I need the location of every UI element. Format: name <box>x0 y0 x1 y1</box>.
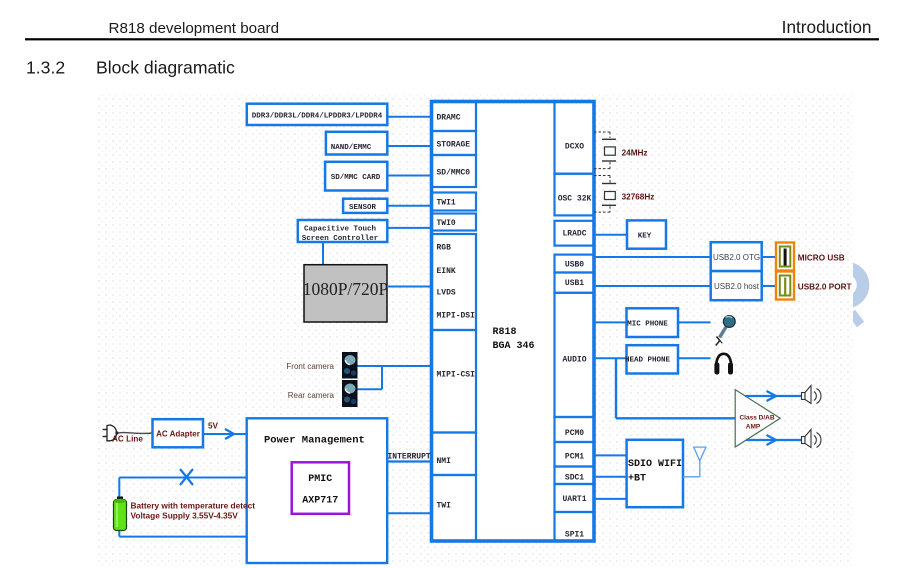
svg-text:USB0: USB0 <box>565 261 584 270</box>
svg-text:Voltage Supply 3.55V-4.35V: Voltage Supply 3.55V-4.35V <box>131 511 239 521</box>
svg-text:OSC 32K: OSC 32K <box>558 195 592 204</box>
svg-text:SDIO WIFI: SDIO WIFI <box>628 459 682 470</box>
svg-text:R818: R818 <box>493 327 517 338</box>
svg-text:KEY: KEY <box>638 233 652 241</box>
svg-text:SD/MMC CARD: SD/MMC CARD <box>331 174 381 182</box>
svg-text:USB2.0 PORT: USB2.0 PORT <box>798 283 852 292</box>
svg-text:PCM0: PCM0 <box>565 429 584 438</box>
svg-text:TWI: TWI <box>437 502 452 511</box>
svg-text:RGB: RGB <box>437 244 452 253</box>
svg-text:STORAGE: STORAGE <box>437 141 471 150</box>
svg-text:24MHz: 24MHz <box>622 149 648 158</box>
svg-text:MIPI-DSI: MIPI-DSI <box>437 312 476 321</box>
svg-text:MIC PHONE: MIC PHONE <box>627 320 668 328</box>
svg-text:R818 development board: R818 development board <box>109 20 280 37</box>
svg-text:5V: 5V <box>208 422 219 431</box>
svg-text:USB1: USB1 <box>565 279 584 288</box>
svg-text:TWI0: TWI0 <box>437 219 456 228</box>
svg-text:EINK: EINK <box>437 267 456 276</box>
svg-text:SDC1: SDC1 <box>565 474 584 483</box>
svg-text:NAND/EMMC: NAND/EMMC <box>331 144 372 152</box>
svg-text:32768Hz: 32768Hz <box>622 193 655 202</box>
svg-text:AUDIO: AUDIO <box>562 356 586 365</box>
svg-text:USB2.0 OTG: USB2.0 OTG <box>713 253 760 262</box>
svg-text:+BT: +BT <box>628 474 646 485</box>
svg-text:Class D/AB: Class D/AB <box>739 415 774 422</box>
svg-text:SD/MMC0: SD/MMC0 <box>437 169 471 178</box>
svg-text:SPI1: SPI1 <box>565 531 584 540</box>
svg-text:Block diagramatic: Block diagramatic <box>96 58 235 78</box>
svg-text:PMIC: PMIC <box>308 474 332 485</box>
svg-text:Battery with temperature detec: Battery with temperature detect <box>131 501 256 511</box>
svg-text:BGA 346: BGA 346 <box>493 341 535 352</box>
svg-text:LRADC: LRADC <box>562 230 586 239</box>
svg-text:HEAD PHONE: HEAD PHONE <box>625 356 671 364</box>
svg-text:MICRO USB: MICRO USB <box>798 254 845 263</box>
svg-text:Capacitive Touch: Capacitive Touch <box>304 225 377 233</box>
svg-text:NMI: NMI <box>437 457 452 466</box>
svg-text:SENSOR: SENSOR <box>349 204 377 212</box>
svg-text:UART1: UART1 <box>562 495 586 504</box>
svg-text:Rear camera: Rear camera <box>288 391 335 400</box>
svg-text:AMP: AMP <box>746 424 761 431</box>
svg-text:Front camera: Front camera <box>286 362 334 371</box>
svg-text:Introduction: Introduction <box>782 17 872 37</box>
svg-text:Power Management: Power Management <box>264 435 365 447</box>
svg-text:USB2.0 host: USB2.0 host <box>714 282 760 291</box>
svg-text:MIPI-CSI: MIPI-CSI <box>437 371 476 380</box>
svg-text:Screen Controller: Screen Controller <box>302 235 379 243</box>
svg-text:DCXO: DCXO <box>565 143 584 152</box>
svg-text:AXP717: AXP717 <box>302 496 338 507</box>
svg-text:1080P/720P: 1080P/720P <box>303 279 389 299</box>
svg-text:1.3.2: 1.3.2 <box>26 58 65 78</box>
svg-text:AC Line: AC Line <box>112 435 143 444</box>
svg-text:INTERRUPT: INTERRUPT <box>388 453 431 462</box>
svg-text:AC Adapter: AC Adapter <box>156 429 200 438</box>
svg-text:TWI1: TWI1 <box>437 199 456 208</box>
svg-text:PCM1: PCM1 <box>565 453 584 462</box>
svg-text:DDR3/DDR3L/DDR4/LPDDR3/LPDDR4: DDR3/DDR3L/DDR4/LPDDR3/LPDDR4 <box>252 112 383 120</box>
svg-text:DRAMC: DRAMC <box>437 114 461 123</box>
svg-text:LVDS: LVDS <box>437 289 456 298</box>
